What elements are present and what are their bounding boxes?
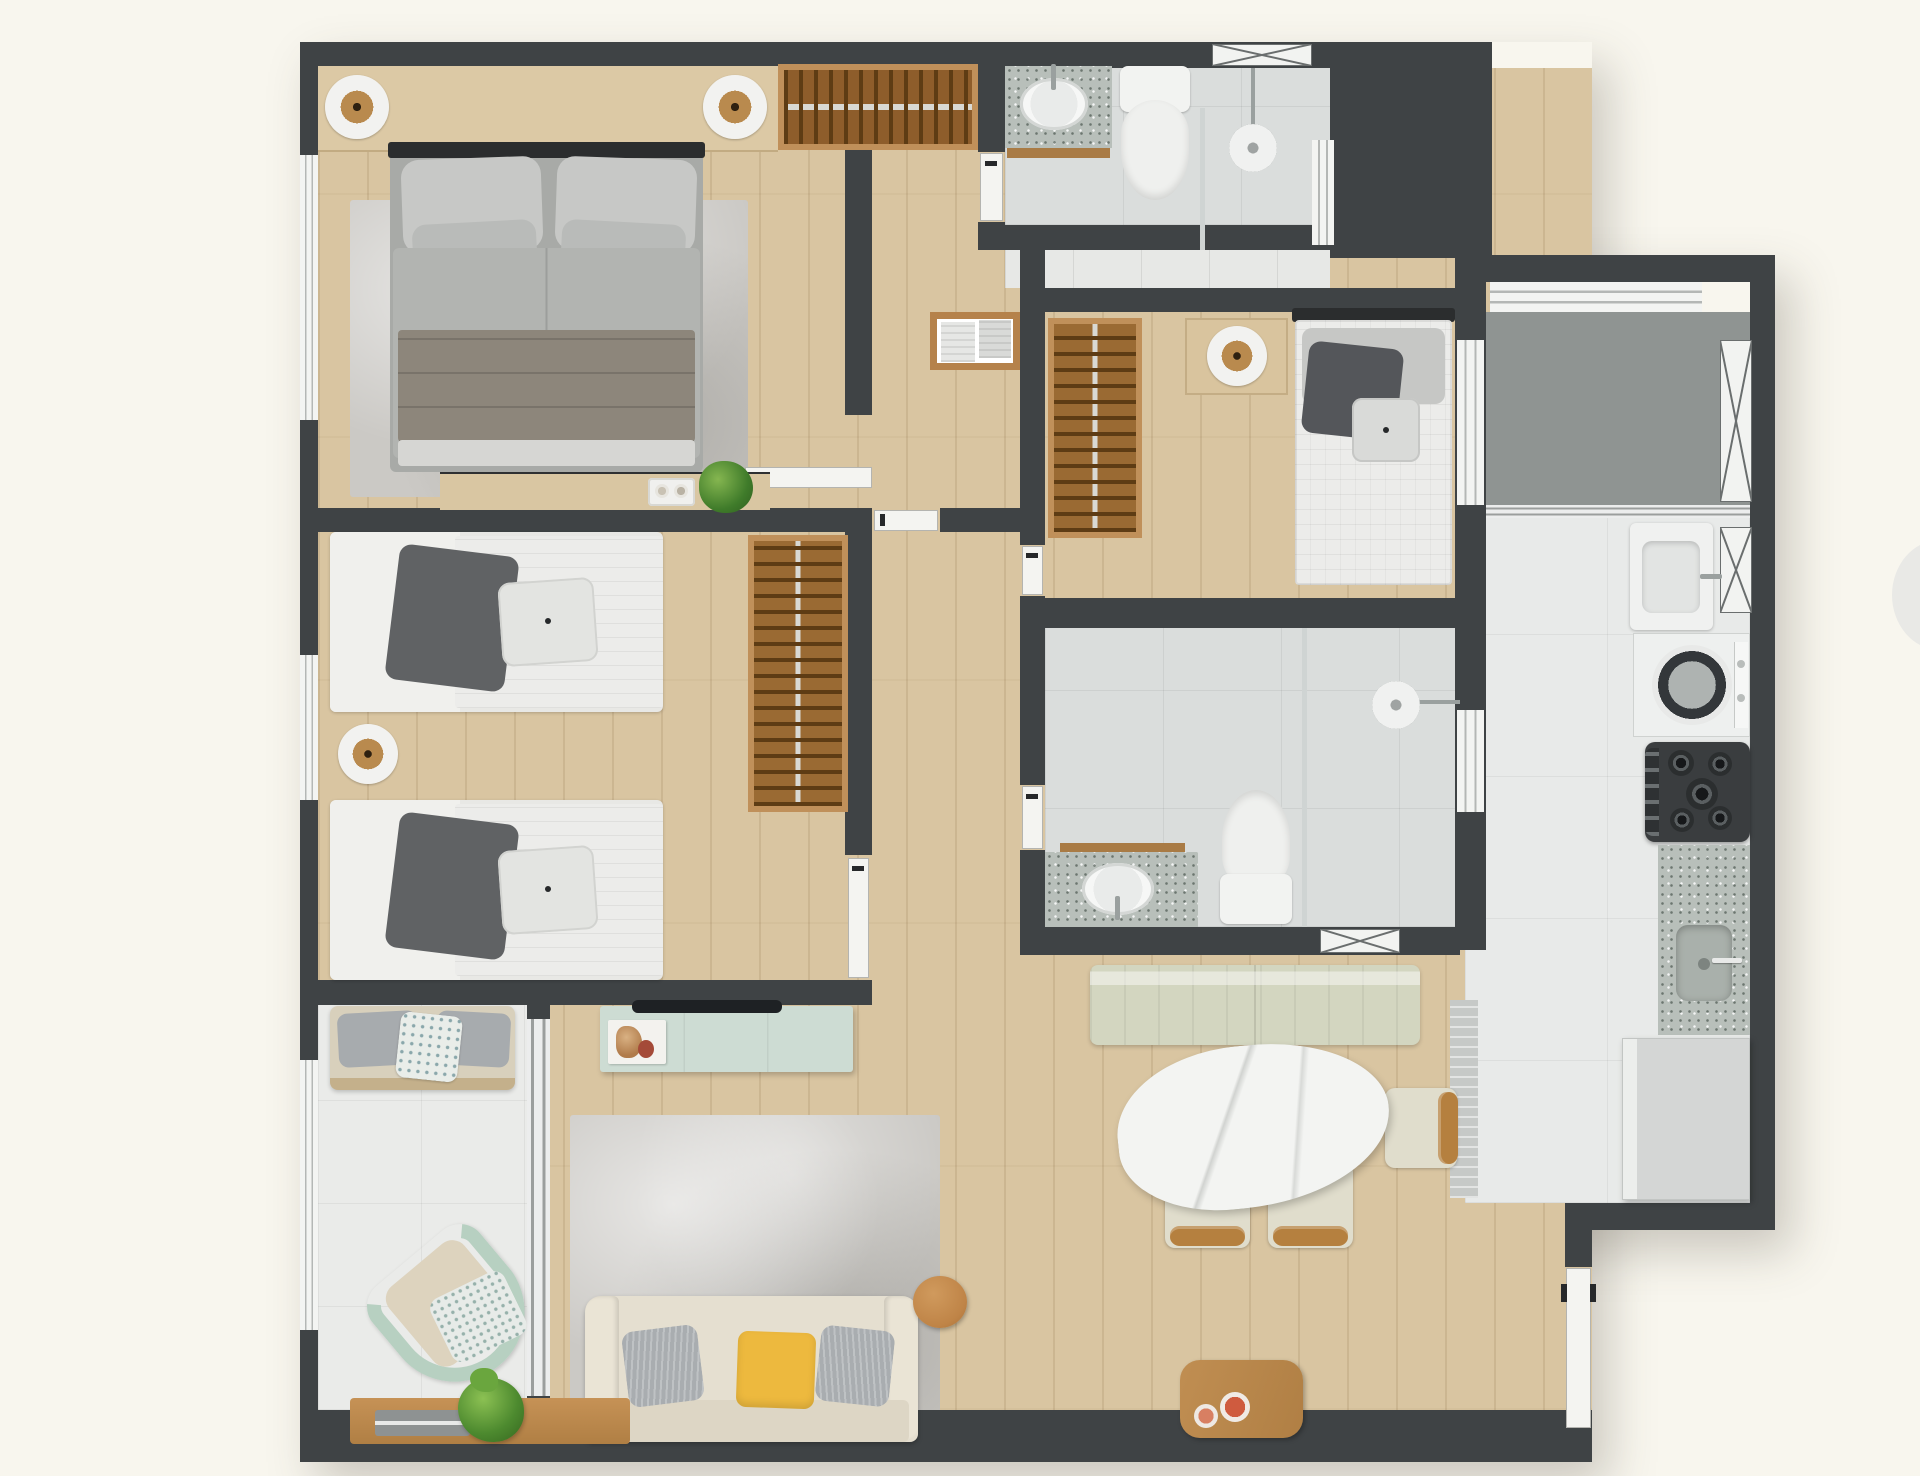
stove-burner	[1708, 752, 1732, 776]
wall	[1455, 255, 1775, 282]
banquette-bench	[1090, 965, 1420, 1045]
door-handle	[1026, 553, 1038, 558]
kitchen-faucet	[1712, 958, 1742, 963]
master-bed-blanket	[398, 330, 695, 442]
dish	[1220, 1392, 1250, 1422]
bedroom3-lamp	[1207, 326, 1267, 386]
master-lamp-right	[703, 75, 767, 139]
pillow-button	[545, 886, 551, 892]
window-bedroom3-right	[1457, 340, 1484, 505]
service-top-glazing	[1490, 282, 1702, 312]
door-handle	[852, 866, 864, 871]
balcony-bench-edge	[330, 1078, 515, 1090]
dining-chair-backrest	[1438, 1092, 1458, 1164]
tv-flatscreen	[632, 1000, 782, 1013]
stove-burner	[1668, 750, 1694, 776]
bath1-shower-glass	[1200, 108, 1205, 250]
bath2-faucet	[1115, 896, 1120, 920]
bath2-shower-arm	[1418, 700, 1460, 704]
master-bed-sheet-fold	[398, 440, 695, 466]
wall	[845, 980, 872, 1005]
wall	[845, 532, 872, 855]
master-bed-headboard	[388, 142, 705, 158]
stove-knob-strip	[1645, 748, 1659, 836]
door-handle	[880, 514, 885, 526]
pillow-button	[545, 618, 551, 624]
wall	[978, 42, 1005, 152]
pillow-button	[1383, 427, 1389, 433]
washer-drum	[1652, 645, 1732, 725]
door-handle	[1026, 794, 1038, 799]
window-master-left	[300, 155, 318, 420]
master-wardrobe-hangers	[778, 64, 978, 150]
bath1-vanity-ledge	[1007, 148, 1110, 158]
wall-shaft-mass	[1330, 42, 1492, 258]
floorplan-canvas	[0, 0, 1920, 1476]
bath1-toilet-bowl	[1121, 100, 1189, 200]
bath2-shower-glass	[1302, 628, 1307, 927]
wall	[1750, 255, 1775, 1230]
stove-burner	[1708, 806, 1732, 830]
washer-knob	[1737, 660, 1745, 668]
wall	[845, 150, 872, 415]
wall	[318, 508, 872, 532]
door-handle	[1590, 1284, 1596, 1302]
wall	[1565, 1428, 1592, 1462]
towel	[979, 320, 1011, 358]
wall	[1020, 598, 1460, 628]
window-bathroom2-right	[1457, 710, 1484, 812]
door-twin-bedroom	[848, 858, 869, 978]
x-vent-window-bathroom1	[1212, 44, 1312, 66]
round-side-table	[913, 1276, 967, 1328]
door-entry	[1566, 1268, 1591, 1428]
refrigerator	[1622, 1038, 1750, 1200]
x-vent-window-service-upper	[1720, 340, 1752, 502]
wall	[318, 980, 872, 1005]
washer-panel	[1734, 642, 1748, 728]
stove-burner	[1670, 808, 1694, 832]
service-sliding-door	[1486, 505, 1750, 518]
twin-wardrobe-hangers	[748, 535, 848, 812]
twin-bedside-lamp	[338, 724, 398, 784]
wall	[1565, 1230, 1592, 1267]
bath2-shower-head	[1372, 681, 1420, 729]
floor-service-area	[1486, 312, 1750, 505]
sofa-pillow-gray	[621, 1324, 706, 1409]
towel	[941, 322, 975, 362]
plant-balcony-leaf	[470, 1368, 498, 1392]
built-in-closet-strip	[1005, 250, 1330, 288]
bath1-shower-head	[1229, 124, 1277, 172]
perfume-bottle	[655, 484, 669, 498]
door-handle	[1561, 1284, 1567, 1302]
bath1-faucet	[1051, 64, 1056, 90]
washer-knob	[1737, 694, 1745, 702]
bench-pillow-pattern	[395, 1011, 464, 1083]
bedroom3-wardrobe-hangers	[1048, 318, 1142, 538]
laundry-faucet	[1700, 574, 1722, 579]
magazine-cover-art	[638, 1040, 654, 1058]
wall	[1565, 1203, 1775, 1230]
plant-dresser	[699, 461, 753, 513]
x-vent-window-service-lower	[1720, 527, 1752, 613]
sofa-pillow-gray	[814, 1324, 896, 1407]
sofa-pillow-yellow	[736, 1331, 817, 1410]
dish	[1194, 1404, 1218, 1428]
window-bathroom1-right	[1312, 140, 1334, 245]
kitchen-sink-drain	[1698, 958, 1710, 970]
dining-chair-backrest	[1273, 1226, 1348, 1246]
balcony-shelf-tray	[375, 1410, 470, 1436]
sliding-door-stub	[527, 1005, 550, 1019]
watermark-circle	[1892, 540, 1920, 650]
bath2-vanity-ledge	[1060, 843, 1185, 852]
window-balcony-left	[300, 1060, 318, 1330]
bath2-toilet-tank	[1220, 874, 1292, 924]
stove-burner	[1686, 778, 1718, 810]
x-vent-window-bathroom2	[1320, 929, 1400, 953]
wall	[978, 225, 1330, 250]
door-handle	[985, 161, 997, 166]
master-lamp-left	[325, 75, 389, 139]
bath1-shower-arm	[1251, 68, 1255, 128]
wall	[940, 508, 1022, 532]
perfume-bottle	[674, 484, 688, 498]
laundry-tub-basin	[1642, 541, 1700, 613]
window-twin-left	[300, 655, 318, 800]
dining-chair-backrest	[1170, 1226, 1245, 1246]
